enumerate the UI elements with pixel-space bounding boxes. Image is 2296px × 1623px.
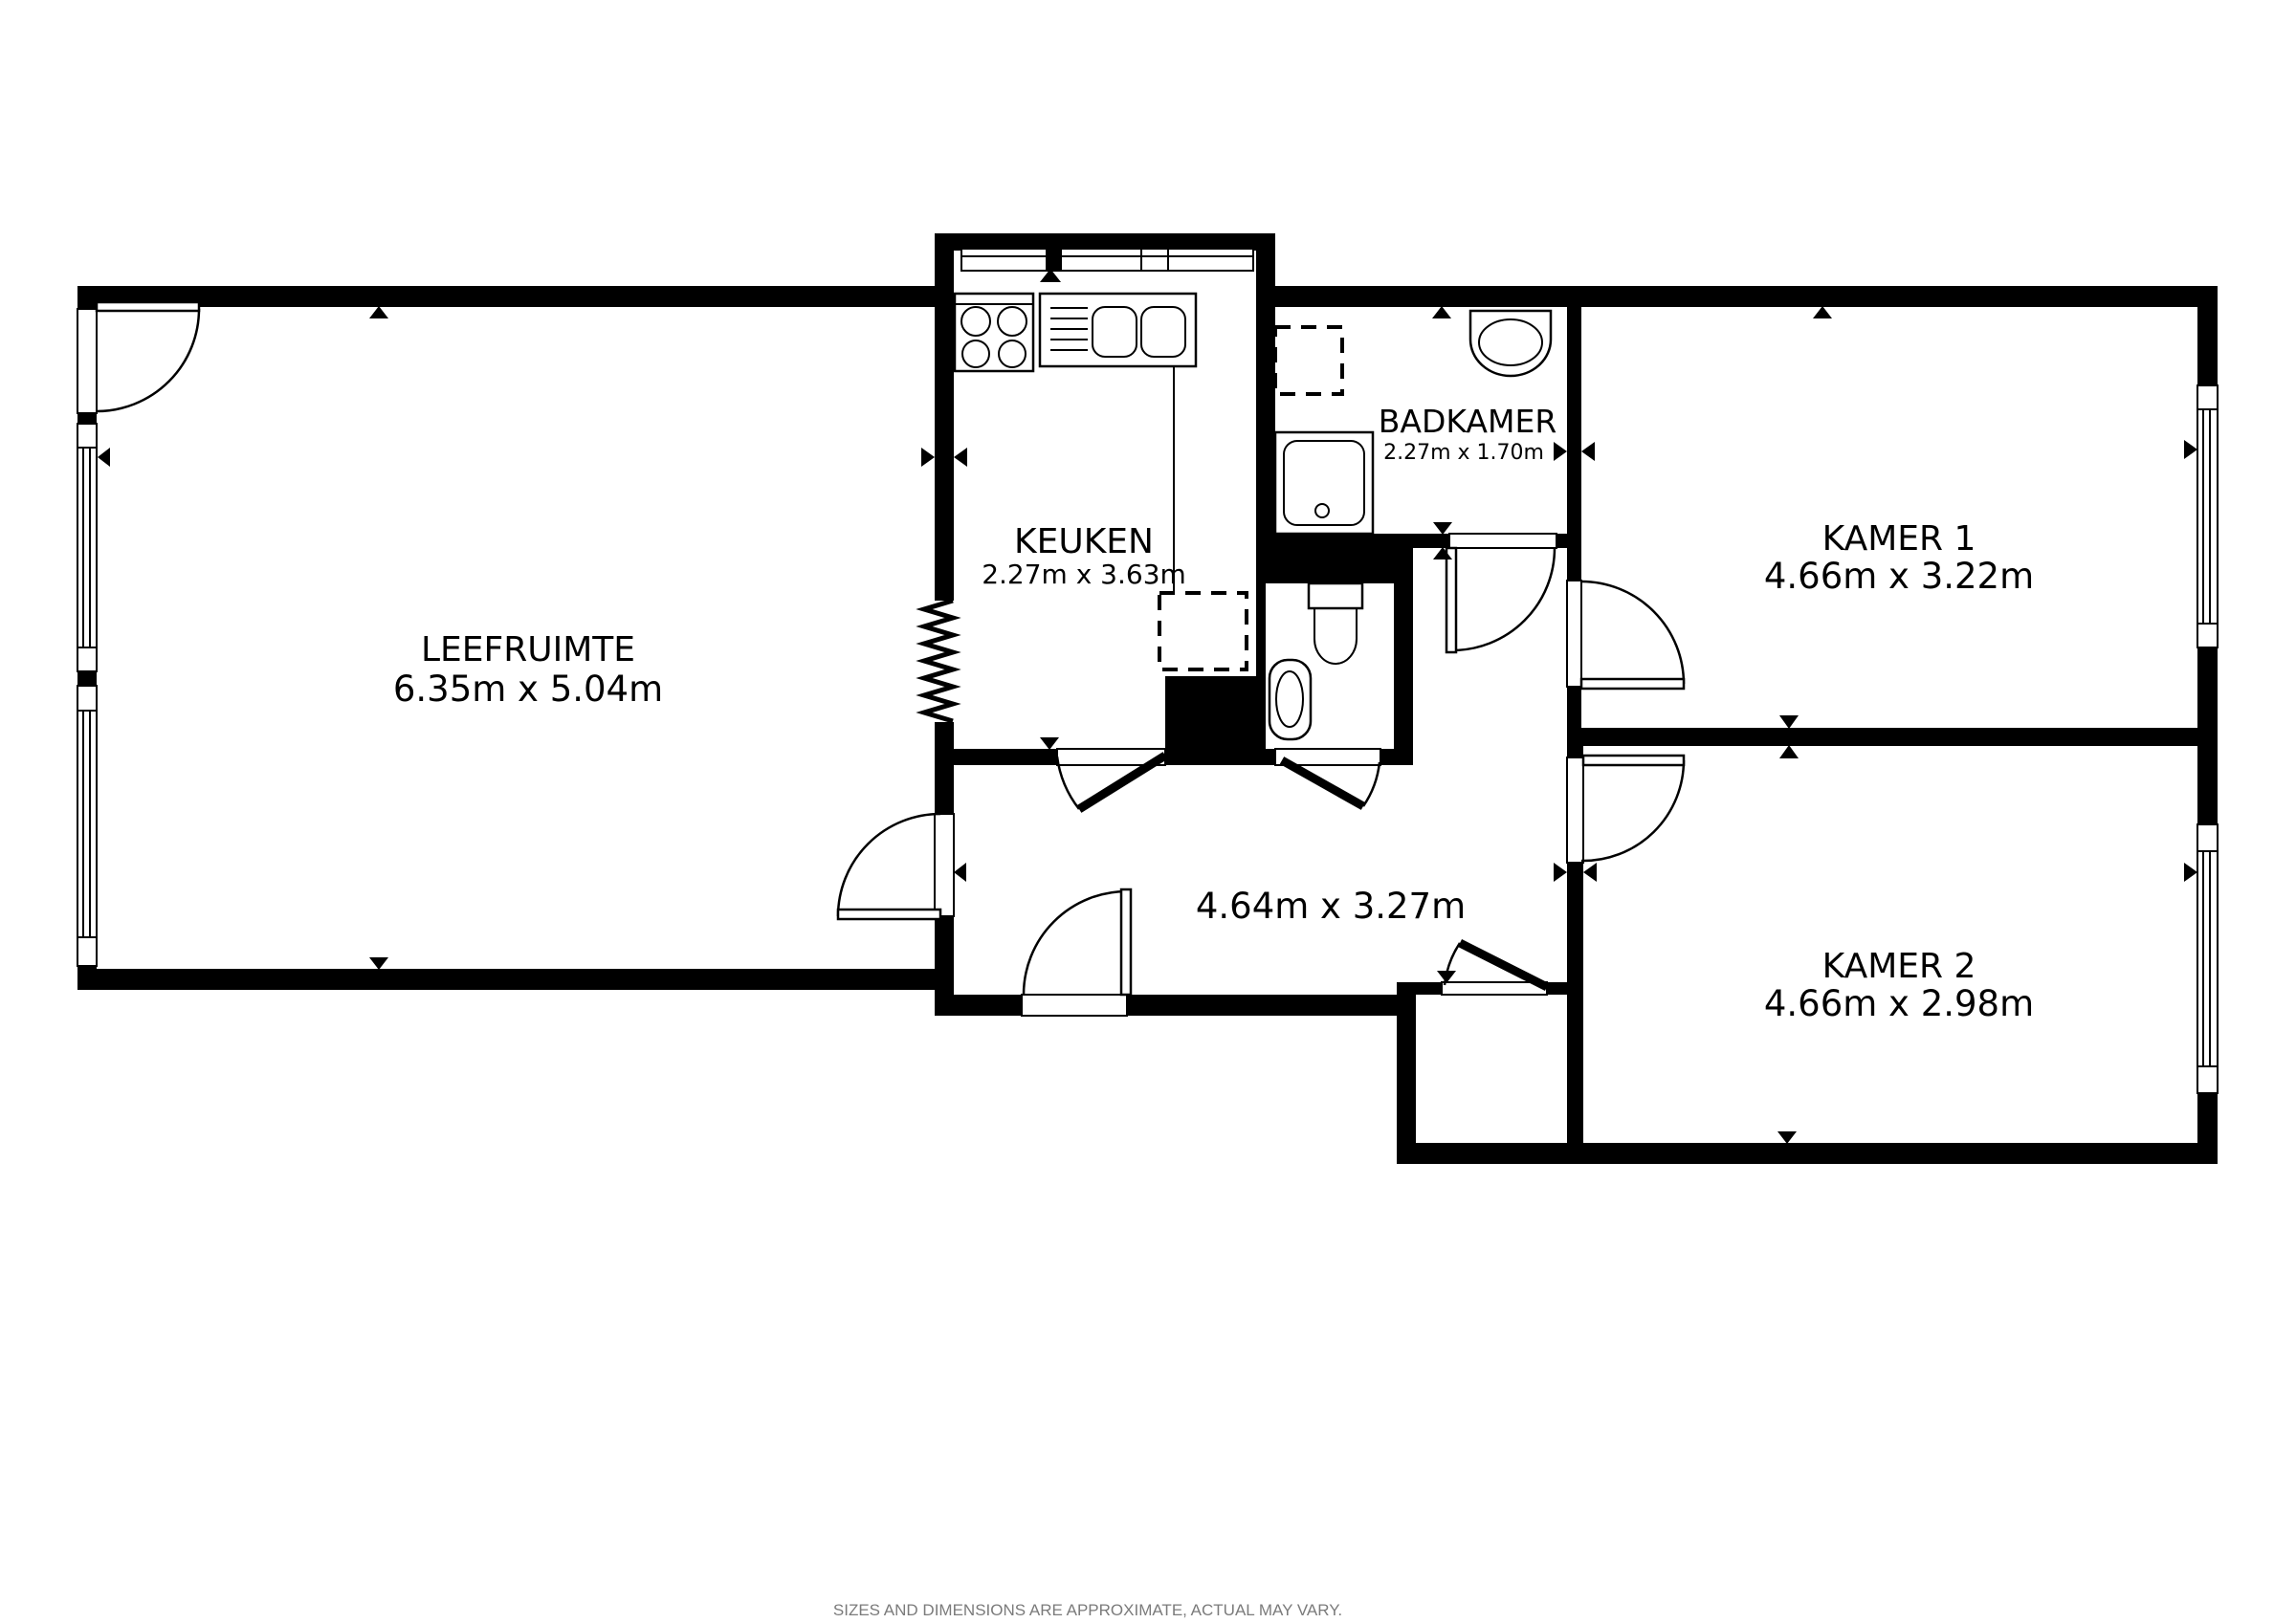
room-label-badkamer: BADKAMER — [1379, 403, 1557, 440]
door-keuken — [1057, 749, 1165, 809]
appliance-dashed-badkamer — [1275, 327, 1342, 394]
window-keuken — [961, 249, 1253, 271]
wc-basin-icon — [1269, 660, 1311, 739]
room-dim-leefruimte: 6.35m x 5.04m — [393, 669, 663, 710]
floorplan-page: LEEFRUIMTE 6.35m x 5.04m KEUKEN 2.27m x … — [0, 0, 2296, 1623]
door-balcony — [77, 302, 199, 413]
door-kamer2 — [1567, 756, 1684, 863]
radiator-zigzag-icon — [924, 601, 954, 722]
room-dim-kamer2: 4.66m x 2.98m — [1764, 983, 2034, 1024]
door-vestibule — [1442, 943, 1547, 995]
wc-fixtures — [1269, 583, 1362, 739]
room-dim-hal: 4.64m x 3.27m — [1196, 886, 1466, 927]
room-label-kamer1: KAMER 1 — [1822, 519, 1976, 559]
kitchen-sink-icon — [1040, 294, 1196, 366]
window-kamer1 — [2197, 385, 2218, 647]
door-entrance — [1022, 889, 1131, 1016]
appliance-dashed-keuken — [1159, 593, 1247, 669]
kitchen-fixtures — [955, 294, 1247, 669]
toilet-icon — [1309, 583, 1362, 664]
window-kamer2 — [2197, 824, 2218, 1093]
room-dim-keuken: 2.27m x 3.63m — [982, 559, 1186, 590]
footer-disclaimer: SIZES AND DIMENSIONS ARE APPROXIMATE, AC… — [833, 1601, 1342, 1619]
stove-icon — [955, 294, 1033, 371]
bath-basin-icon — [1470, 311, 1551, 376]
window-leefruimte-upper — [77, 424, 97, 671]
window-leefruimte-lower — [77, 686, 97, 966]
room-dim-badkamer: 2.27m x 1.70m — [1383, 441, 1544, 465]
shower-icon — [1275, 432, 1373, 534]
door-badkamer — [1446, 534, 1556, 652]
door-wc — [1275, 749, 1380, 806]
room-dim-kamer1: 4.66m x 3.22m — [1764, 556, 2034, 597]
door-kamer1 — [1567, 581, 1684, 689]
room-label-kamer2: KAMER 2 — [1822, 947, 1976, 986]
floorplan-drawing: LEEFRUIMTE 6.35m x 5.04m KEUKEN 2.27m x … — [0, 0, 2296, 1623]
door-leefruimte — [838, 814, 954, 919]
room-label-leefruimte: LEEFRUIMTE — [421, 630, 635, 669]
room-label-keuken: KEUKEN — [1014, 522, 1154, 561]
